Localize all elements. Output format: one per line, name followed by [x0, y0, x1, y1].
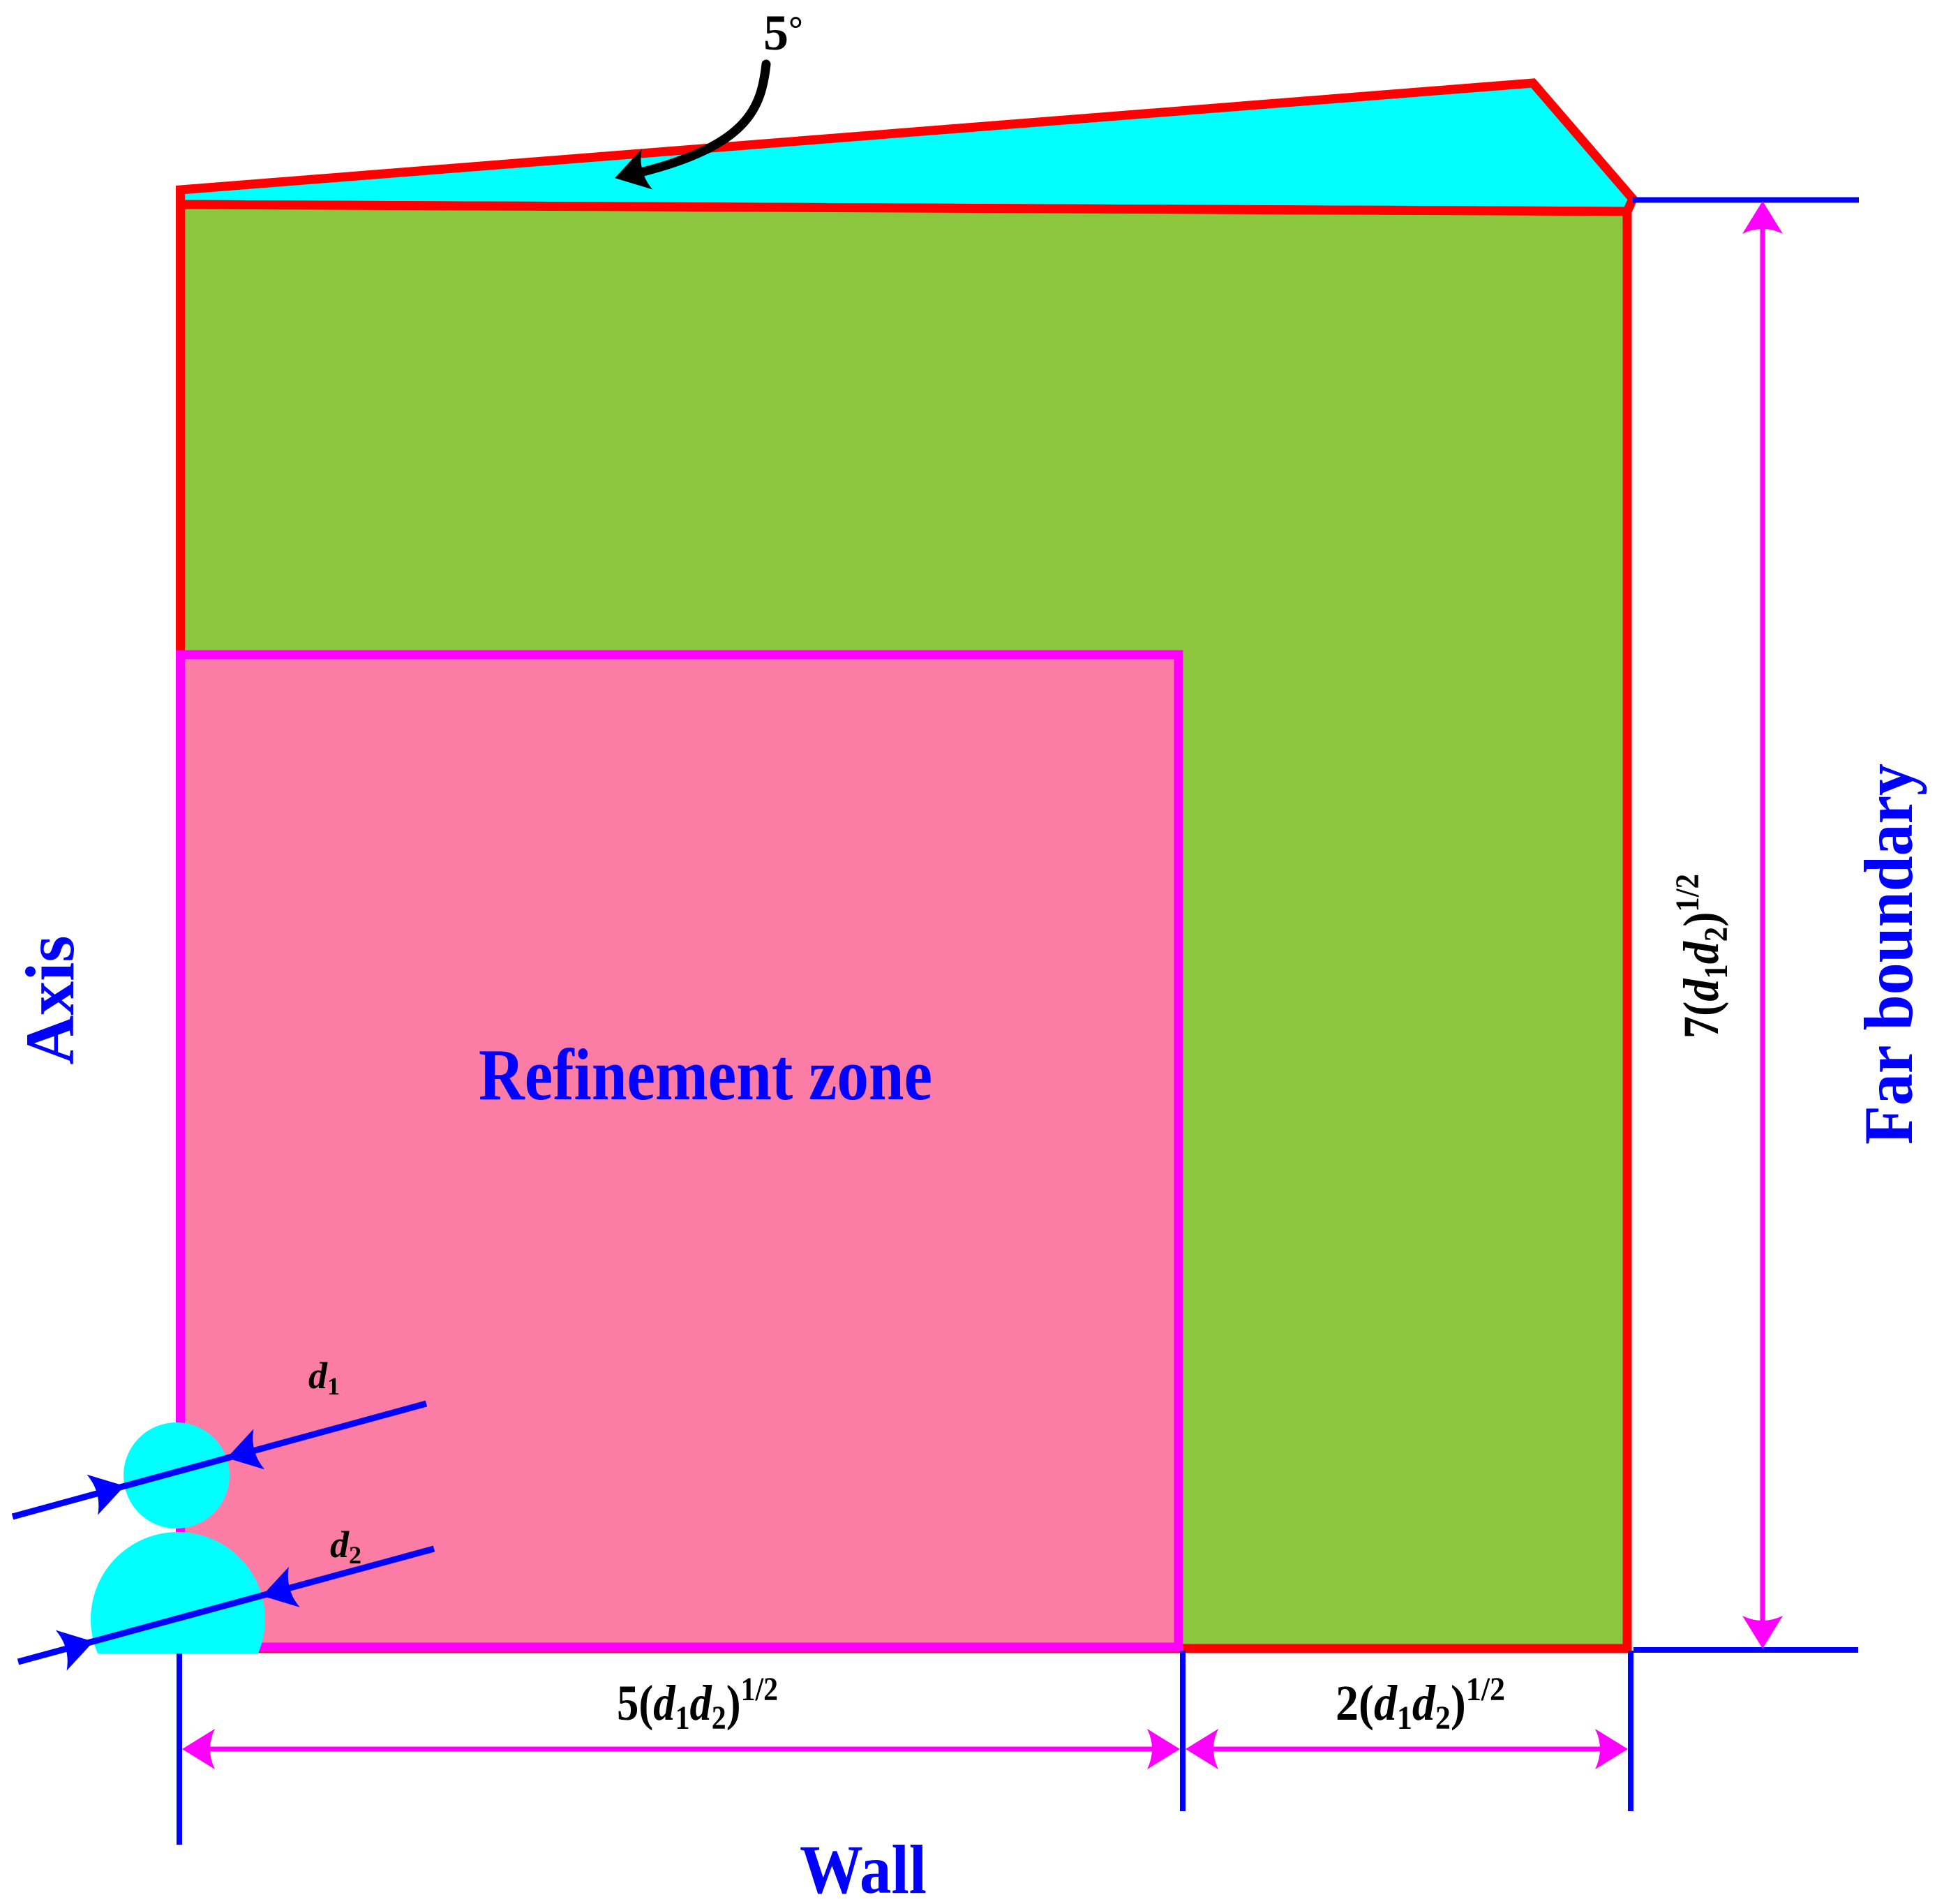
- svg-text:Far boundary: Far boundary: [1850, 764, 1927, 1145]
- svg-text:Wall: Wall: [800, 1831, 927, 1904]
- svg-text:Axis: Axis: [11, 936, 89, 1065]
- svg-text:Refinement zone: Refinement zone: [479, 1034, 932, 1115]
